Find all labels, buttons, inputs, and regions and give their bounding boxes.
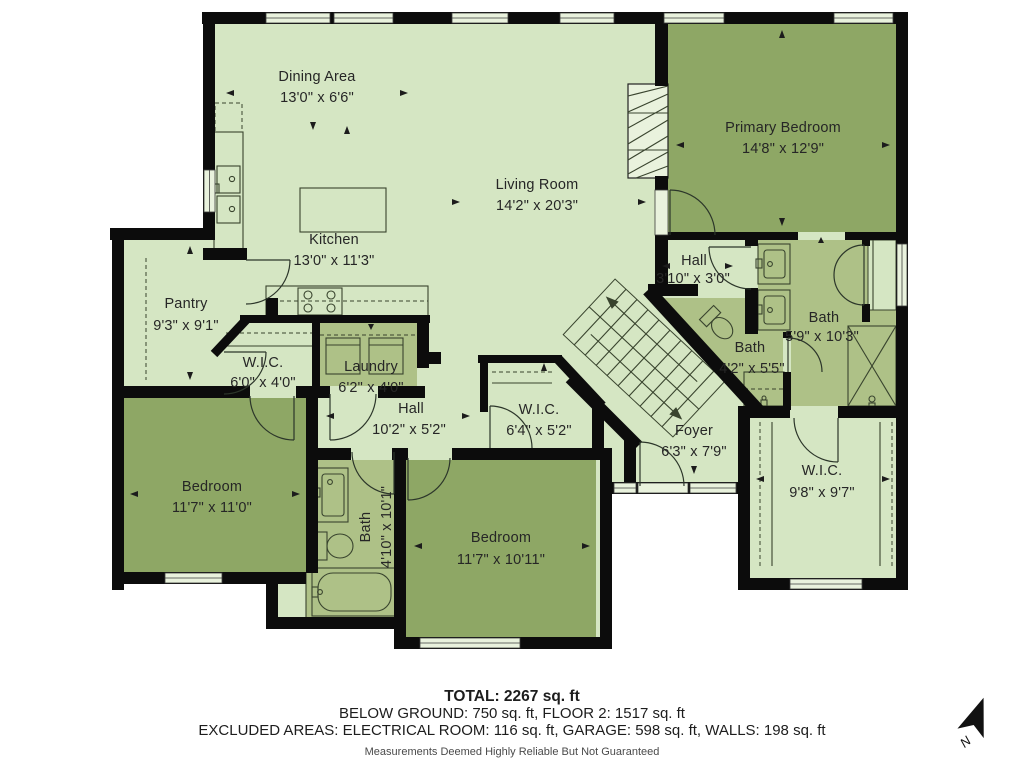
window-icon [790, 579, 862, 589]
label-bedroom-mid-name: Bedroom [471, 530, 531, 546]
label-hall-lower-name: Hall [398, 401, 424, 417]
window-icon [834, 13, 893, 23]
north-label: N [957, 733, 974, 751]
label-kitchen-name: Kitchen [309, 232, 359, 248]
fireplace-icon [628, 84, 668, 178]
label-wic-mid-dims: 6'4" x 5'2" [506, 423, 572, 439]
label-laundry-dims: 6'2" x 4'0" [338, 380, 404, 396]
label-bath-powder-dims: 4'2" x 5'5" [719, 361, 785, 377]
window-icon [897, 244, 907, 306]
window-icon [614, 483, 636, 493]
label-wic-small-name: W.I.C. [243, 355, 284, 371]
label-wic-primary-name: W.I.C. [802, 463, 843, 479]
window-icon [165, 573, 222, 583]
total-area-text: TOTAL: 2267 sq. ft [0, 688, 1024, 705]
label-hall-upper-dims: 3'10" x 3'0" [656, 271, 730, 287]
label-living-name: Living Room [496, 177, 579, 193]
label-pantry-name: Pantry [164, 296, 208, 312]
label-bath-hall-dims: 4'10" x 10'1" [379, 486, 395, 568]
label-primary-name: Primary Bedroom [725, 120, 841, 136]
label-pantry-dims: 9'3" x 9'1" [153, 318, 219, 334]
disclaimer-text: Measurements Deemed Highly Reliable But … [0, 746, 1024, 758]
label-bedroom-left-dims: 11'7" x 11'0" [172, 500, 252, 516]
label-bath-primary-name: Bath [809, 310, 840, 326]
label-foyer-name: Foyer [675, 423, 713, 439]
excluded-areas-text: EXCLUDED AREAS: ELECTRICAL ROOM: 116 sq.… [0, 722, 1024, 739]
north-arrow-icon [957, 693, 996, 738]
label-wic-small-dims: 6'0" x 4'0" [230, 375, 296, 391]
label-primary-dims: 14'8" x 12'9" [742, 141, 824, 157]
bedroom-mid-floor [406, 460, 596, 637]
label-bedroom-mid-dims: 11'7" x 10'11" [457, 552, 545, 568]
area-summary: TOTAL: 2267 sq. ft BELOW GROUND: 750 sq.… [0, 688, 1024, 758]
label-living-dims: 14'2" x 20'3" [496, 198, 578, 214]
label-hall-upper-name: Hall [681, 253, 707, 269]
window-icon [266, 13, 330, 23]
label-dining-name: Dining Area [278, 69, 356, 85]
window-icon [334, 13, 393, 23]
label-dining-dims: 13'0" x 6'6" [280, 90, 354, 106]
window-icon [204, 170, 215, 212]
window-icon [452, 13, 508, 23]
window-icon [420, 638, 520, 648]
label-bedroom-left-name: Bedroom [182, 479, 242, 495]
north-arrow: N [930, 688, 1020, 768]
floor-areas-text: BELOW GROUND: 750 sq. ft, FLOOR 2: 1517 … [0, 705, 1024, 722]
label-wic-primary-dims: 9'8" x 9'7" [789, 485, 855, 501]
floor-plan-page: Dining Area 13'0" x 6'6" Living Room 14'… [0, 0, 1024, 768]
label-hall-lower-dims: 10'2" x 5'2" [372, 422, 446, 438]
label-bath-hall-name: Bath [358, 512, 374, 543]
window-icon [690, 483, 736, 493]
label-bath-primary-dims: 5'9" x 10'3" [785, 329, 859, 345]
floor-plan-drawing: Dining Area 13'0" x 6'6" Living Room 14'… [0, 0, 1024, 672]
label-bath-powder-name: Bath [735, 340, 766, 356]
window-icon [560, 13, 614, 23]
label-wic-mid-name: W.I.C. [519, 402, 560, 418]
label-foyer-dims: 6'3" x 7'9" [661, 444, 727, 460]
label-laundry-name: Laundry [344, 359, 398, 375]
window-icon [664, 13, 724, 23]
linen-closet-floor [868, 240, 896, 310]
label-kitchen-dims: 13'0" x 11'3" [293, 253, 374, 269]
